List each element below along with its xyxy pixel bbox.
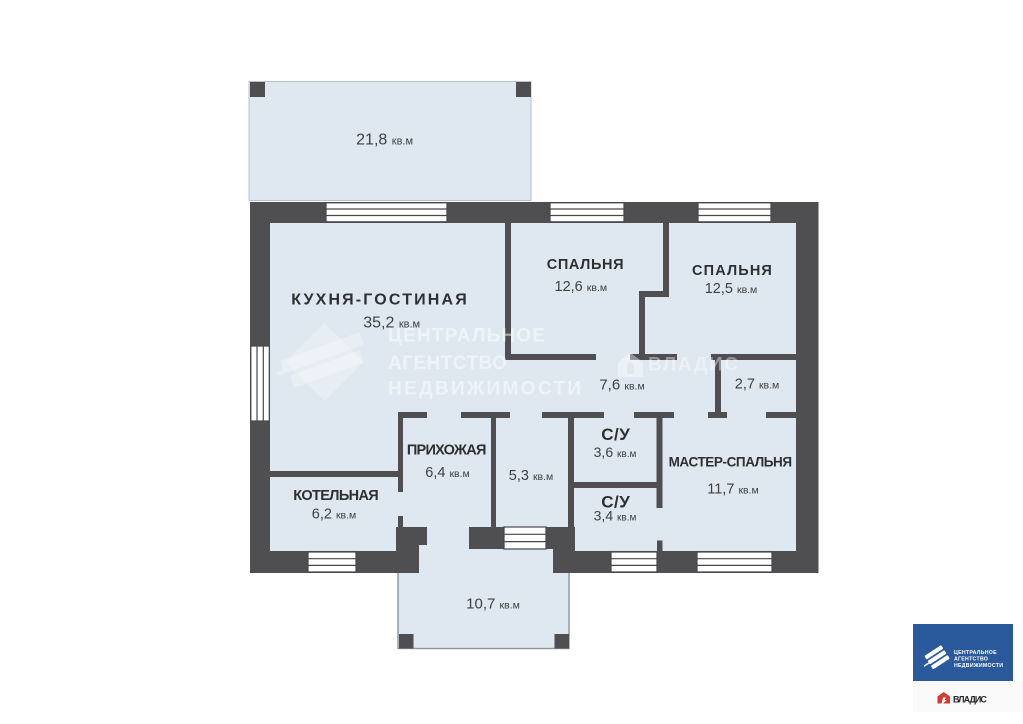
svg-text:ВЛАДИС: ВЛАДИС xyxy=(953,694,988,704)
svg-text:С/У: С/У xyxy=(601,425,630,444)
svg-text:5,3 кв.м: 5,3 кв.м xyxy=(509,468,554,484)
svg-text:ПРИХОЖАЯ: ПРИХОЖАЯ xyxy=(407,443,487,459)
svg-text:АГЕНТСТВО: АГЕНТСТВО xyxy=(388,353,507,374)
svg-text:ЦЕНТРАЛЬНОЕ: ЦЕНТРАЛЬНОЕ xyxy=(954,650,997,656)
svg-text:КОТЕЛЬНАЯ: КОТЕЛЬНАЯ xyxy=(293,488,379,504)
svg-text:СПАЛЬНЯ: СПАЛЬНЯ xyxy=(692,263,772,279)
svg-text:6,4 кв.м: 6,4 кв.м xyxy=(425,465,470,481)
svg-text:12,5 кв.м: 12,5 кв.м xyxy=(705,281,758,297)
svg-text:12,6 кв.м: 12,6 кв.м xyxy=(555,279,608,295)
svg-text:2,7 кв.м: 2,7 кв.м xyxy=(735,376,780,392)
svg-text:КУХНЯ-ГОСТИНАЯ: КУХНЯ-ГОСТИНАЯ xyxy=(291,291,467,308)
svg-text:МАСТЕР-СПАЛЬНЯ: МАСТЕР-СПАЛЬНЯ xyxy=(669,454,793,469)
svg-text:11,7 кв.м: 11,7 кв.м xyxy=(707,482,759,498)
svg-text:6,2 кв.м: 6,2 кв.м xyxy=(312,506,357,522)
svg-text:СПАЛЬНЯ: СПАЛЬНЯ xyxy=(547,257,624,273)
svg-text:ЦЕНТРАЛЬНОЕ: ЦЕНТРАЛЬНОЕ xyxy=(388,325,545,346)
svg-text:НЕДВИЖИМОСТИ: НЕДВИЖИМОСТИ xyxy=(954,663,1003,669)
svg-text:АГЕНТСТВО: АГЕНТСТВО xyxy=(954,656,988,662)
